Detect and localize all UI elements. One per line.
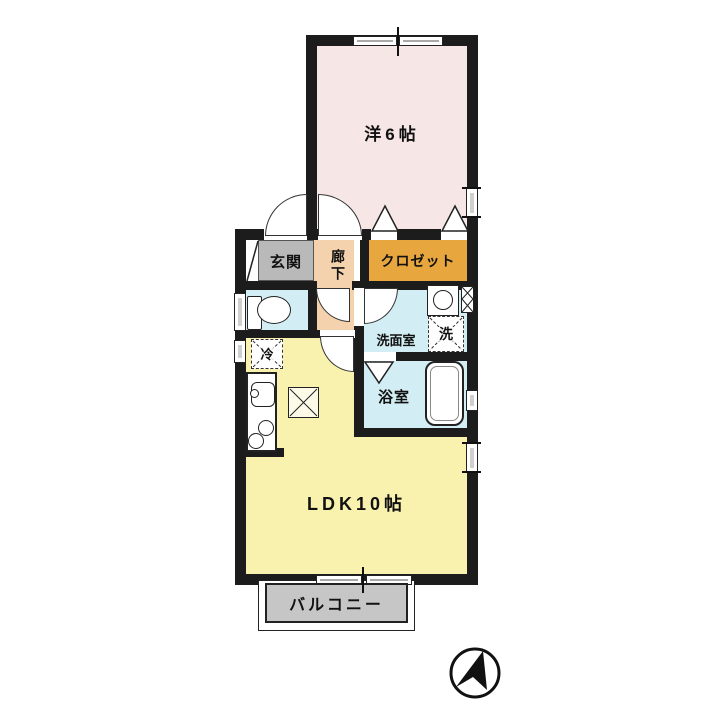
label-genkan: 玄関 xyxy=(258,250,314,272)
window-kitchen-left xyxy=(234,340,246,363)
bathtub-inner xyxy=(430,366,459,421)
window-western-top-2 xyxy=(399,36,443,46)
label-western-room: 洋6帖 xyxy=(317,120,467,144)
window-ldk-right xyxy=(466,443,478,473)
label-closet: クロゼット xyxy=(369,250,467,272)
wall-closet-left xyxy=(360,240,369,281)
wall-toilet-bottom xyxy=(235,330,320,338)
label-balcony: バルコニー xyxy=(265,592,408,614)
entrance-door-swing xyxy=(265,194,307,236)
floor-hatch-cross xyxy=(288,387,319,418)
wall-bathroom-bottom xyxy=(354,428,478,437)
label-ldk: LDK10帖 xyxy=(246,490,467,516)
window-toilet-left xyxy=(234,293,246,331)
window-tick xyxy=(462,442,481,444)
window-tick xyxy=(462,216,481,218)
closet-folding-door-icon xyxy=(370,204,400,233)
label-corridor: 廊下 xyxy=(326,243,350,289)
louver-window-icon xyxy=(461,286,474,313)
toilet-bowl-icon xyxy=(257,296,291,324)
bathroom-folding-door-icon xyxy=(363,360,395,385)
floorplan-canvas: 洋6帖 玄関 廊下 クロゼット 洗面室 洗 浴室 冷 LDK10帖 バルコニー xyxy=(0,0,720,720)
window-western-top-1 xyxy=(353,36,397,46)
north-arrow-icon xyxy=(447,645,503,701)
label-refrigerator: 冷 xyxy=(251,339,283,369)
window-center-tick xyxy=(362,567,364,593)
opening-washroom-door xyxy=(354,288,364,326)
window-bathroom-right xyxy=(466,390,478,411)
wall-western-left xyxy=(306,35,317,240)
label-bathroom: 浴室 xyxy=(364,385,424,407)
label-washroom: 洗面室 xyxy=(366,330,426,348)
window-center-tick xyxy=(397,27,399,56)
faucet-icon xyxy=(250,389,259,398)
label-washing-machine: 洗 xyxy=(428,316,464,352)
washbasin-bowl-icon xyxy=(433,290,453,310)
window-tick xyxy=(462,187,481,189)
stove-burner-icon xyxy=(248,433,264,449)
window-western-right xyxy=(466,188,478,218)
wall-genkan-bottom xyxy=(235,281,317,290)
window-tick xyxy=(462,471,481,473)
